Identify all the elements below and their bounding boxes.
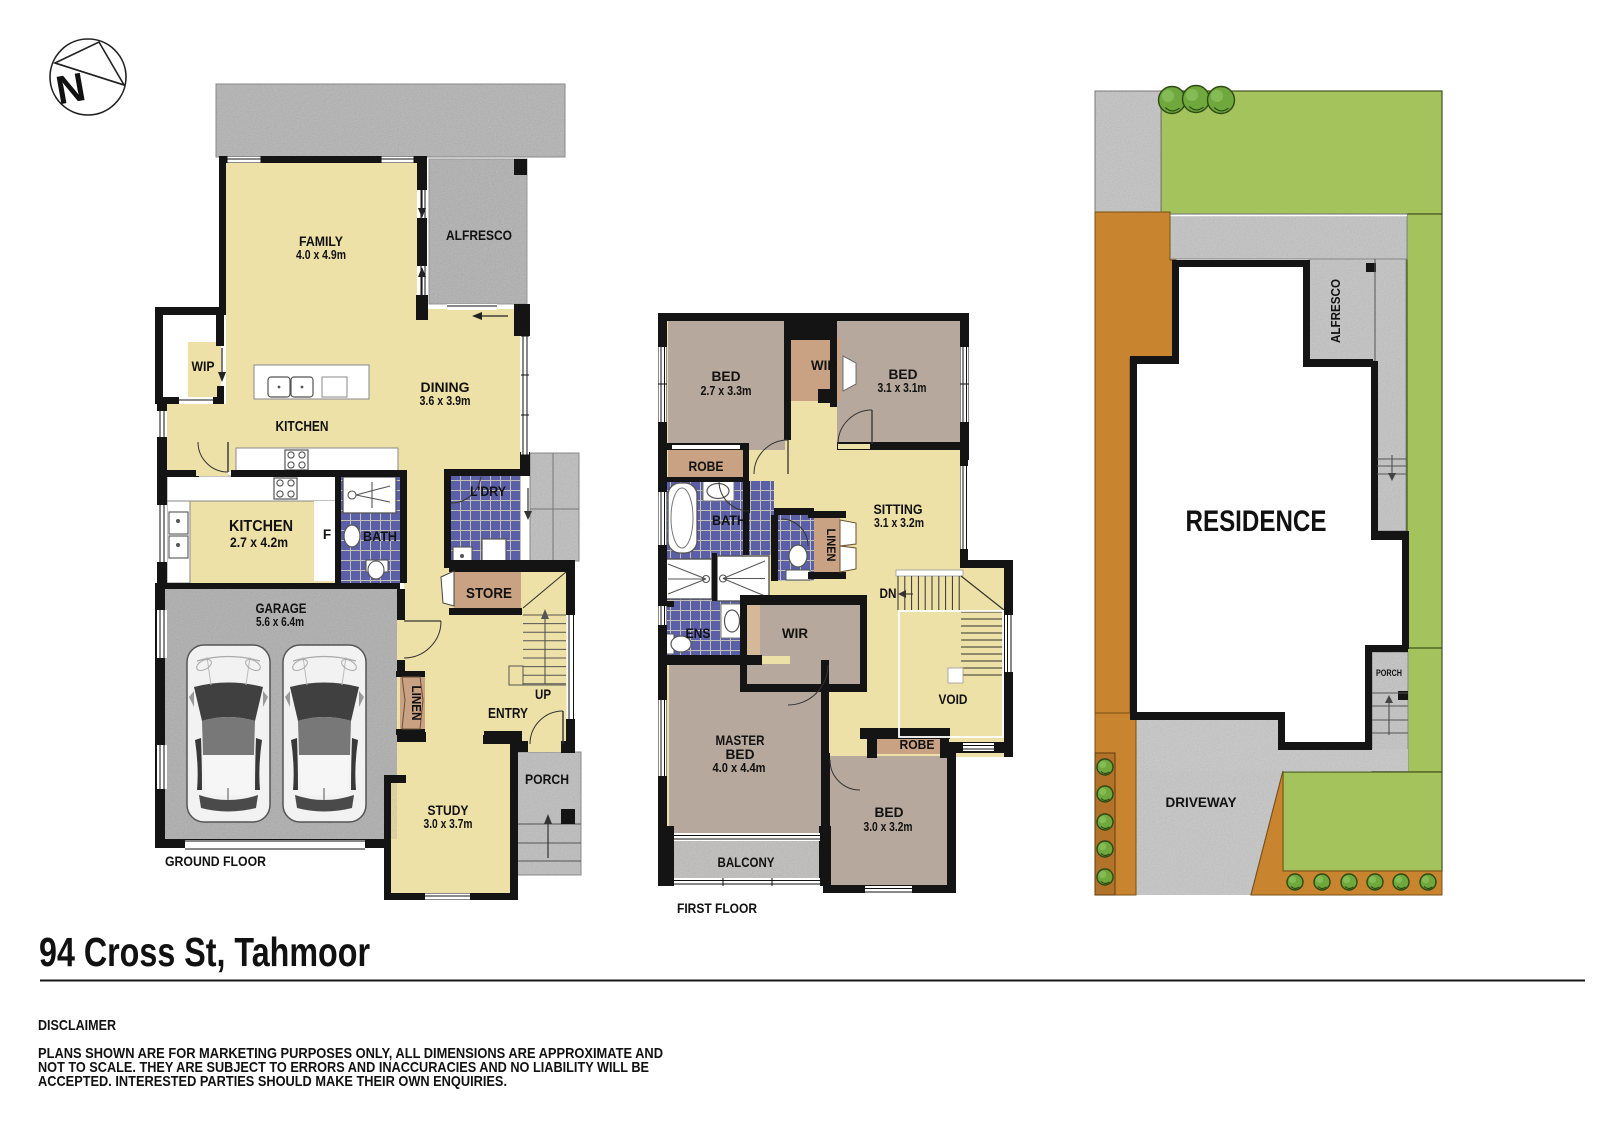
svg-text:DISCLAIMER: DISCLAIMER — [38, 1017, 116, 1034]
svg-text:PORCH: PORCH — [1376, 668, 1402, 678]
svg-text:ALFRESCO: ALFRESCO — [446, 227, 512, 243]
svg-text:STORE: STORE — [466, 585, 512, 602]
svg-text:STUDY: STUDY — [428, 802, 470, 818]
svg-text:BATH: BATH — [363, 529, 397, 544]
svg-text:SITTING: SITTING — [874, 501, 923, 517]
svg-text:5.6 x 6.4m: 5.6 x 6.4m — [256, 615, 304, 629]
svg-text:ACCEPTED. INTERESTED PARTIES S: ACCEPTED. INTERESTED PARTIES SHOULD MAKE… — [38, 1073, 507, 1090]
svg-text:F: F — [323, 527, 331, 542]
svg-text:3.1 x 3.2m: 3.1 x 3.2m — [874, 516, 924, 530]
svg-text:DINING: DINING — [421, 379, 470, 395]
svg-text:KITCHEN: KITCHEN — [276, 418, 329, 435]
svg-text:3.6 x 3.9m: 3.6 x 3.9m — [420, 394, 471, 408]
svg-text:DRIVEWAY: DRIVEWAY — [1166, 795, 1237, 810]
svg-text:ALFRESCO: ALFRESCO — [1328, 279, 1343, 343]
svg-text:94 Cross St, Tahmoor: 94 Cross St, Tahmoor — [39, 929, 370, 975]
svg-text:2.7 x 3.3m: 2.7 x 3.3m — [701, 384, 752, 398]
svg-text:PORCH: PORCH — [525, 771, 569, 787]
svg-text:BATH: BATH — [712, 513, 746, 528]
svg-text:WIR: WIR — [782, 626, 808, 641]
svg-text:LINEN: LINEN — [824, 529, 838, 562]
svg-text:4.0 x 4.4m: 4.0 x 4.4m — [713, 761, 766, 775]
svg-text:WIP: WIP — [192, 358, 215, 374]
svg-text:KITCHEN: KITCHEN — [229, 518, 293, 535]
svg-text:LINEN: LINEN — [409, 686, 423, 721]
svg-text:ROBE: ROBE — [689, 459, 724, 474]
svg-text:WIR: WIR — [811, 358, 837, 373]
svg-text:2.7 x 4.2m: 2.7 x 4.2m — [230, 535, 288, 550]
svg-text:3.0 x 3.7m: 3.0 x 3.7m — [424, 817, 473, 831]
svg-text:DN: DN — [880, 586, 897, 601]
svg-text:VOID: VOID — [939, 691, 968, 707]
svg-text:GROUND FLOOR: GROUND FLOOR — [165, 853, 266, 869]
svg-text:BED: BED — [726, 746, 755, 762]
svg-text:L’DRY: L’DRY — [470, 484, 506, 499]
svg-text:4.0 x 4.9m: 4.0 x 4.9m — [296, 248, 346, 262]
svg-text:3.1 x 3.1m: 3.1 x 3.1m — [878, 381, 927, 395]
svg-text:ROBE: ROBE — [900, 737, 935, 752]
svg-text:BED: BED — [875, 804, 904, 820]
svg-text:ENS: ENS — [686, 626, 711, 641]
svg-text:BED: BED — [889, 366, 918, 382]
svg-text:FAMILY: FAMILY — [299, 233, 344, 249]
svg-text:BED: BED — [712, 368, 741, 384]
svg-text:FIRST FLOOR: FIRST FLOOR — [677, 900, 757, 916]
svg-text:UP: UP — [535, 686, 551, 702]
svg-text:BALCONY: BALCONY — [718, 855, 775, 870]
svg-text:ENTRY: ENTRY — [488, 705, 528, 722]
svg-text:3.0 x 3.2m: 3.0 x 3.2m — [864, 820, 913, 834]
svg-text:RESIDENCE: RESIDENCE — [1186, 505, 1327, 538]
svg-text:GARAGE: GARAGE — [256, 600, 307, 616]
